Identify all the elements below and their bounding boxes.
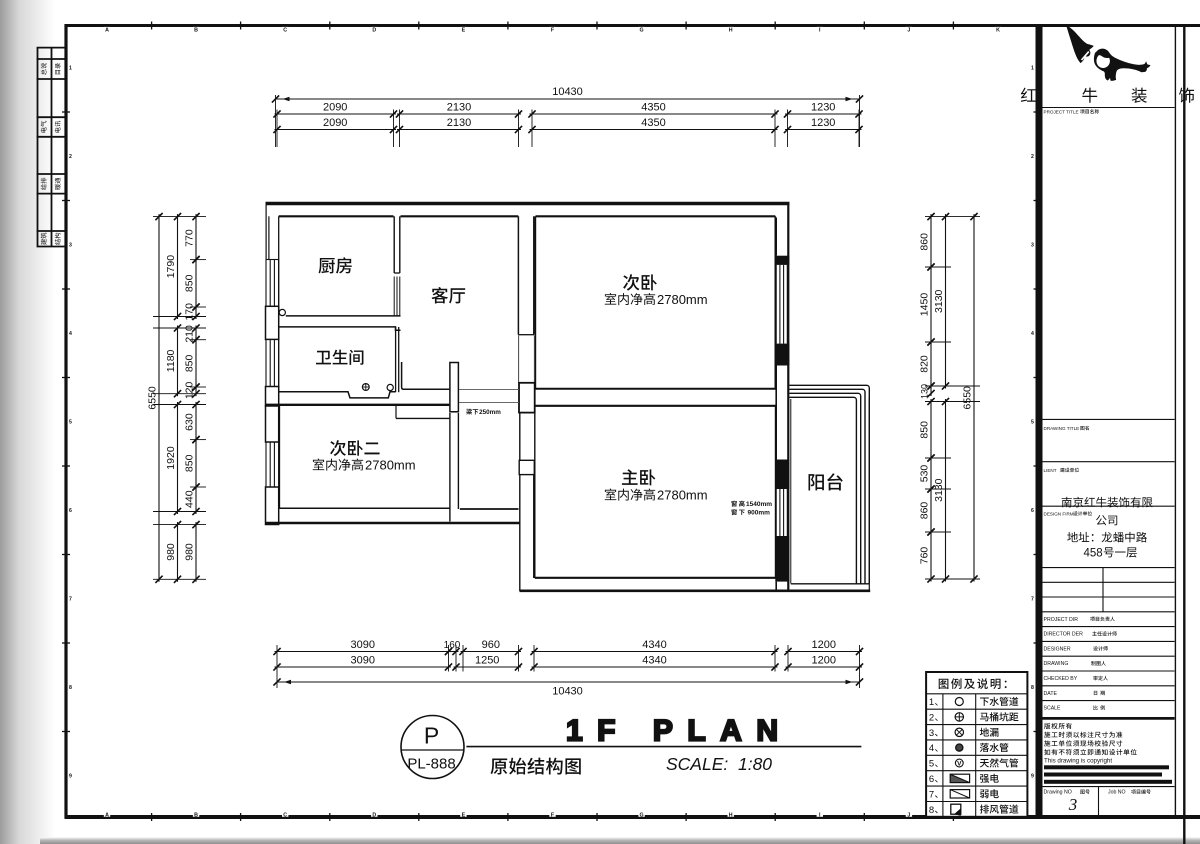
svg-text:1200: 1200 — [812, 655, 836, 667]
svg-text:9: 9 — [1031, 774, 1034, 780]
svg-text:PL-888: PL-888 — [407, 756, 455, 773]
svg-text:PROJECT DIR: PROJECT DIR — [1044, 617, 1079, 623]
svg-text:4: 4 — [929, 743, 934, 754]
svg-text:5: 5 — [1031, 420, 1034, 426]
svg-text:1: 1 — [929, 697, 934, 708]
svg-text:860: 860 — [919, 502, 931, 520]
svg-text:3090: 3090 — [351, 655, 375, 667]
svg-text:3130: 3130 — [933, 478, 945, 502]
svg-text:1F PLAN: 1F PLAN — [566, 715, 793, 748]
svg-text:8: 8 — [929, 805, 934, 816]
svg-text:DESIGN FIRM: DESIGN FIRM — [1044, 511, 1074, 516]
svg-text:P: P — [424, 723, 439, 749]
svg-text:2130: 2130 — [447, 102, 471, 114]
svg-text:DRAWING: DRAWING — [1044, 661, 1069, 667]
svg-text:170: 170 — [184, 303, 196, 321]
svg-text:1230: 1230 — [811, 117, 835, 129]
svg-text:7: 7 — [69, 597, 72, 603]
svg-text:6: 6 — [1031, 508, 1034, 514]
svg-text:2130: 2130 — [447, 117, 471, 129]
svg-text:630: 630 — [184, 413, 196, 431]
svg-text:This drawing is copyright: This drawing is copyright — [1044, 758, 1112, 765]
svg-text:1230: 1230 — [811, 102, 835, 114]
svg-text:C: C — [283, 812, 287, 818]
svg-text:850: 850 — [184, 274, 196, 292]
svg-text:160: 160 — [444, 640, 461, 651]
svg-text:G: G — [640, 28, 644, 34]
svg-text:DRAWING TITLE: DRAWING TITLE — [1044, 426, 1080, 431]
svg-text:CHECKED BY: CHECKED BY — [1044, 676, 1078, 682]
svg-text:10430: 10430 — [552, 686, 583, 698]
svg-text:3: 3 — [1031, 243, 1034, 249]
svg-text:530: 530 — [919, 465, 931, 483]
svg-text:4350: 4350 — [641, 117, 665, 129]
svg-text:9: 9 — [69, 774, 72, 780]
svg-text:4340: 4340 — [642, 655, 666, 667]
svg-text:440: 440 — [184, 490, 196, 508]
svg-text:DESIGNER: DESIGNER — [1044, 646, 1071, 652]
svg-text:1: 1 — [69, 66, 72, 72]
svg-text:DIRECTOR DER: DIRECTOR DER — [1044, 632, 1084, 638]
svg-text:6: 6 — [69, 508, 72, 514]
svg-text:1180: 1180 — [165, 349, 177, 372]
svg-text:DATE: DATE — [1044, 691, 1058, 697]
svg-text:980: 980 — [184, 543, 196, 561]
svg-text:3: 3 — [929, 728, 934, 739]
svg-text:A: A — [105, 28, 109, 34]
svg-text:3090: 3090 — [351, 639, 375, 651]
svg-text:760: 760 — [919, 547, 931, 565]
svg-text:10430: 10430 — [552, 86, 583, 98]
svg-text:LIENT: LIENT — [1044, 468, 1057, 473]
svg-text:980: 980 — [165, 543, 177, 561]
svg-text:2: 2 — [69, 154, 72, 160]
svg-text:J: J — [907, 812, 910, 818]
svg-text:SCALE: SCALE — [1044, 706, 1062, 712]
svg-text:2780mm: 2780mm — [657, 292, 708, 307]
svg-text:2: 2 — [929, 713, 934, 724]
svg-text:1200: 1200 — [812, 639, 836, 651]
svg-text:6: 6 — [929, 774, 934, 785]
svg-text:E: E — [462, 812, 466, 818]
svg-text:V: V — [957, 761, 962, 768]
svg-text:2780mm: 2780mm — [365, 458, 416, 473]
svg-text:2090: 2090 — [323, 117, 347, 129]
svg-text:960: 960 — [482, 639, 500, 651]
svg-text:3: 3 — [69, 243, 72, 249]
svg-text:B: B — [194, 28, 198, 34]
svg-text:850: 850 — [184, 454, 196, 472]
svg-text:120: 120 — [184, 381, 196, 399]
svg-text:D: D — [372, 28, 376, 34]
svg-text:1: 1 — [1031, 66, 1034, 72]
svg-text:H: H — [729, 812, 733, 818]
svg-text:SCALE: 1:80: SCALE: 1:80 — [666, 754, 772, 774]
svg-text:K: K — [996, 28, 1000, 34]
svg-text:D: D — [372, 812, 376, 818]
svg-text:6550: 6550 — [147, 386, 159, 410]
svg-text:3130: 3130 — [933, 289, 945, 313]
svg-text:Drawing NO: Drawing NO — [1044, 790, 1072, 796]
svg-text:2: 2 — [1031, 154, 1034, 160]
svg-text:458: 458 — [1084, 548, 1103, 560]
svg-text:850: 850 — [919, 421, 931, 439]
svg-text:B: B — [194, 812, 198, 818]
svg-text:3: 3 — [1068, 795, 1078, 814]
svg-text:1920: 1920 — [165, 446, 177, 470]
svg-text:7: 7 — [1031, 597, 1034, 603]
svg-text:2780mm: 2780mm — [657, 488, 708, 503]
svg-text:7: 7 — [929, 789, 934, 800]
svg-text:E: E — [462, 28, 466, 34]
svg-text:6550: 6550 — [962, 386, 974, 410]
svg-text:1540mm: 1540mm — [746, 501, 772, 508]
svg-text:5: 5 — [929, 759, 934, 770]
svg-text:G: G — [640, 812, 644, 818]
svg-text:C: C — [283, 28, 287, 34]
svg-text:900mm: 900mm — [748, 510, 771, 517]
svg-text:820: 820 — [919, 355, 931, 373]
svg-text:860: 860 — [919, 233, 931, 251]
svg-text:4340: 4340 — [642, 639, 666, 651]
svg-text:250mm: 250mm — [479, 409, 501, 416]
svg-text:8: 8 — [69, 685, 72, 691]
svg-text:1790: 1790 — [165, 255, 177, 279]
svg-text:4350: 4350 — [641, 102, 665, 114]
svg-text:J: J — [907, 28, 910, 34]
svg-text:4: 4 — [1031, 331, 1034, 337]
svg-text:Job NO: Job NO — [1108, 790, 1126, 796]
svg-text:4: 4 — [69, 331, 72, 337]
svg-text:H: H — [729, 28, 733, 34]
svg-text:1250: 1250 — [475, 655, 499, 667]
svg-text:770: 770 — [184, 229, 196, 247]
svg-text:2090: 2090 — [323, 102, 347, 114]
svg-text:1450: 1450 — [919, 293, 931, 317]
svg-text:A: A — [105, 812, 109, 818]
svg-text:PROJECT TITLE: PROJECT TITLE — [1044, 109, 1079, 114]
svg-text:8: 8 — [1031, 685, 1034, 691]
svg-text:5: 5 — [69, 420, 72, 426]
svg-text:850: 850 — [184, 354, 196, 372]
